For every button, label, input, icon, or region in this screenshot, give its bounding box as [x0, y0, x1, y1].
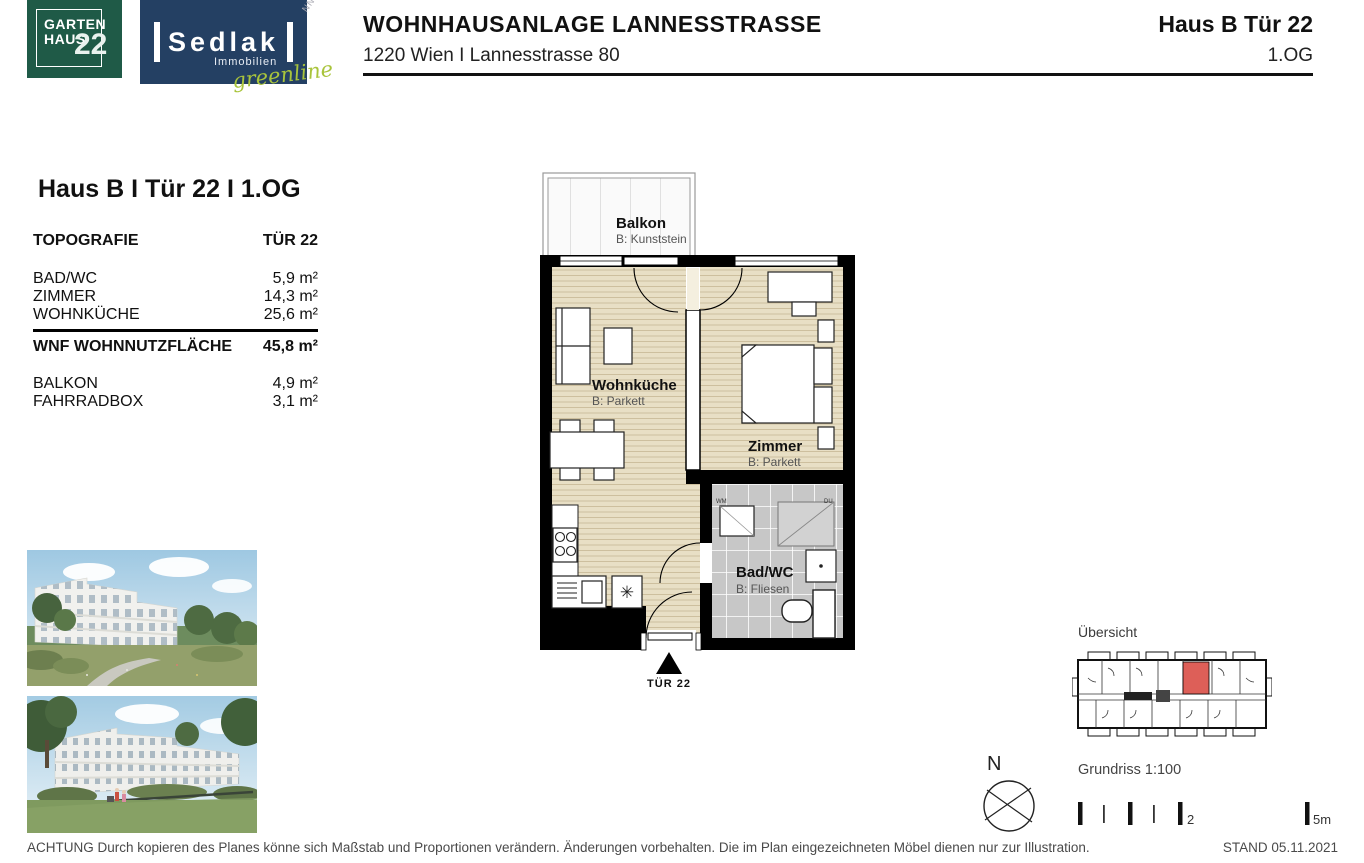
coffee-table — [604, 328, 632, 364]
table-header-left: TOPOGRAFIE — [33, 232, 139, 250]
room-area: 5,9 m² — [273, 270, 318, 288]
logo-bar — [154, 22, 160, 62]
header-rule — [363, 73, 1313, 76]
table-row: WOHNKÜCHE 25,6 m² — [33, 306, 318, 324]
scale-end-label: 5m — [1313, 812, 1331, 827]
watermark-text: NNECT — [300, 0, 329, 14]
total-label: WNF WOHNNUTZFLÄCHE — [33, 338, 232, 356]
room-label-zimmer: Zimmer — [748, 438, 802, 455]
table-divider — [33, 329, 318, 332]
entry-label: TÜR 22 — [647, 677, 691, 690]
scale-title: Grundriss 1:100 — [1078, 762, 1181, 778]
shower — [778, 502, 834, 546]
floor-title: 1.OG — [913, 45, 1313, 67]
table-row: FAHRRADBOX 3,1 m² — [33, 393, 318, 411]
entry-marker-icon — [656, 652, 682, 674]
scale-bar: 2 5m — [1075, 800, 1360, 830]
compass-north-label: N — [987, 753, 1001, 775]
logo-name: Sedlak — [168, 27, 279, 58]
room-sublabel-badwc: B: Fliesen — [736, 582, 789, 596]
washing-machine — [720, 506, 754, 536]
page-title: Haus B I Tür 22 I 1.OG — [38, 175, 301, 204]
room-label-wohnkueche: Wohnküche — [592, 377, 677, 394]
plan-sheet: GARTEN HAUS 22 Sedlak Immobilien greenli… — [0, 0, 1364, 863]
extra-label: BALKON — [33, 375, 98, 393]
partition-wall — [686, 310, 700, 470]
toilet — [782, 600, 812, 622]
stand-date: STAND 05.11.2021 — [1038, 840, 1338, 855]
table-total-row: WNF WOHNNUTZFLÄCHE 45,8 m² — [33, 338, 318, 356]
disclaimer-text: ACHTUNG Durch kopieren des Planes könne … — [27, 840, 1090, 855]
unit-title: Haus B Tür 22 — [913, 11, 1313, 38]
extra-area: 4,9 m² — [273, 375, 318, 393]
photo-rendering-1 — [27, 550, 257, 686]
topography-table: TOPOGRAFIE TÜR 22 BAD/WC 5,9 m² ZIMMER 1… — [33, 232, 318, 411]
room-area: 14,3 m² — [264, 288, 318, 306]
extra-area: 3,1 m² — [273, 393, 318, 411]
wm-label: WM — [716, 499, 727, 505]
floor-plan: ✳ — [528, 160, 880, 695]
room-label-balkon: Balkon — [616, 215, 666, 232]
table-row: BAD/WC 5,9 m² — [33, 270, 318, 288]
overview-highlighted-unit — [1183, 662, 1209, 694]
gartenhaus22-logo: GARTEN HAUS 22 — [27, 0, 122, 78]
table-header-right: TÜR 22 — [263, 232, 318, 250]
photo-rendering-2 — [27, 696, 257, 833]
total-area: 45,8 m² — [263, 338, 318, 356]
freezer-symbol-icon: ✳ — [620, 583, 634, 602]
room-sublabel-wohnkueche: B: Parkett — [592, 394, 645, 408]
compass: N — [975, 748, 1045, 840]
overview-title: Übersicht — [1078, 624, 1137, 640]
overview-miniplan — [1072, 648, 1272, 740]
project-title: WOHNHAUSANLAGE LANNESSTRASSE — [363, 11, 822, 38]
overview-stair-core — [1124, 692, 1152, 700]
sofa — [556, 308, 590, 384]
bathroom-sink — [806, 550, 836, 582]
shaft — [813, 590, 835, 638]
room-sublabel-zimmer: B: Parkett — [748, 455, 801, 469]
logo-bar — [287, 22, 293, 62]
project-address: 1220 Wien I Lannesstrasse 80 — [363, 45, 620, 67]
room-label: ZIMMER — [33, 288, 96, 306]
logo-number: 22 — [74, 28, 107, 62]
du-label: DU — [824, 499, 833, 505]
scale-mid-label: 2 — [1187, 812, 1194, 827]
room-label-badwc: Bad/WC — [736, 564, 794, 581]
room-label: WOHNKÜCHE — [33, 306, 140, 324]
table-row: BALKON 4,9 m² — [33, 375, 318, 393]
table-row: ZIMMER 14,3 m² — [33, 288, 318, 306]
room-area: 25,6 m² — [264, 306, 318, 324]
extra-label: FAHRRADBOX — [33, 393, 143, 411]
room-label: BAD/WC — [33, 270, 97, 288]
room-sublabel-balkon: B: Kunststein — [616, 232, 687, 246]
table-header-row: TOPOGRAFIE TÜR 22 — [33, 232, 318, 250]
